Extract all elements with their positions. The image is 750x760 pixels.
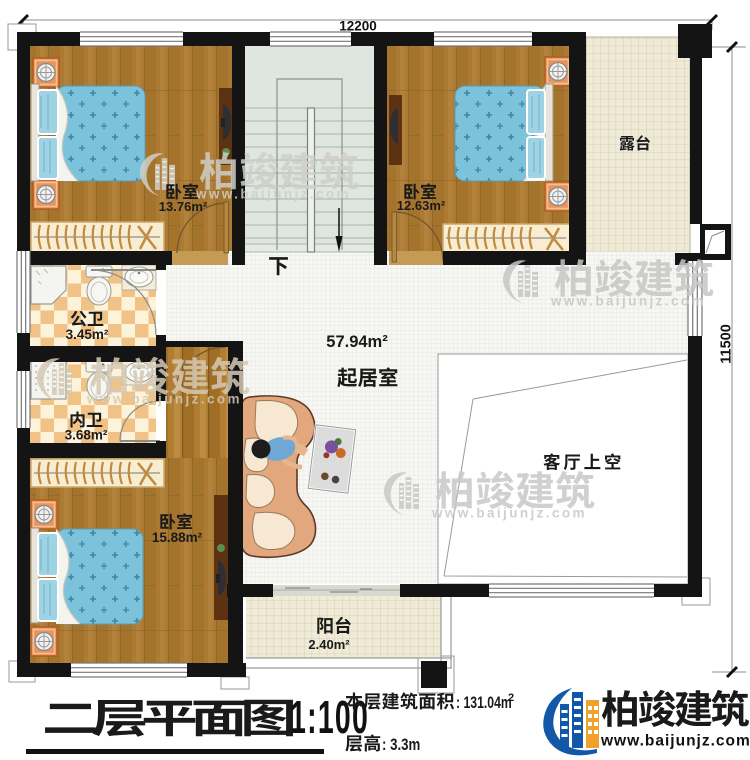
svg-text:12200: 12200 — [339, 19, 377, 34]
svg-text:2: 2 — [508, 692, 514, 704]
svg-text:: 131.04m: : 131.04m — [456, 694, 512, 712]
svg-text:2.40m²: 2.40m² — [308, 637, 350, 652]
svg-text:www.baijunjz.com: www.baijunjz.com — [195, 187, 351, 202]
svg-text:11500: 11500 — [719, 324, 735, 364]
svg-text:13.76m²: 13.76m² — [159, 199, 208, 214]
svg-text:www.baijunjz.com: www.baijunjz.com — [86, 392, 242, 407]
svg-text:www.baijunjz.com: www.baijunjz.com — [550, 294, 706, 309]
svg-text:3.45m²: 3.45m² — [66, 327, 109, 342]
svg-text:: 3.3m: : 3.3m — [382, 736, 420, 755]
svg-text:3.68m²: 3.68m² — [65, 428, 108, 443]
svg-text:www.baijunjz.com: www.baijunjz.com — [600, 733, 750, 750]
svg-text:57.94m²: 57.94m² — [326, 333, 388, 351]
svg-text:www.baijunjz.com: www.baijunjz.com — [431, 506, 587, 521]
svg-text:12.63m²: 12.63m² — [397, 198, 446, 213]
svg-text:15.88m²: 15.88m² — [152, 530, 203, 545]
